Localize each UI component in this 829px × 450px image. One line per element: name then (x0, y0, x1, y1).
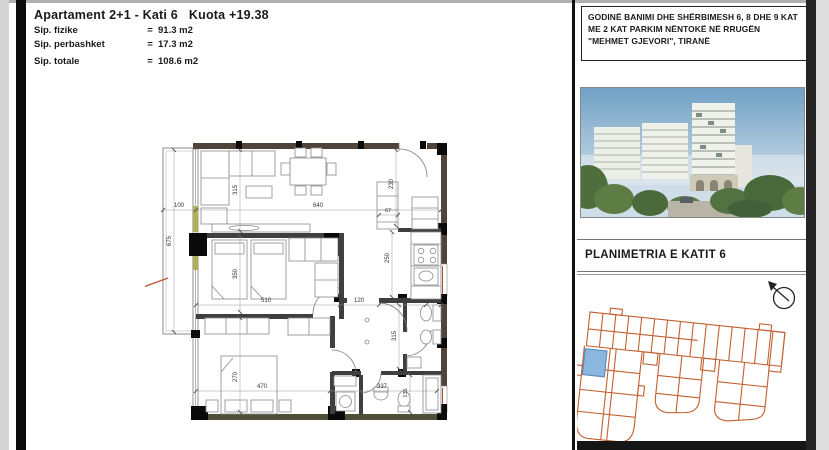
titleblock-separator (572, 0, 575, 450)
svg-text:120: 120 (354, 298, 365, 304)
key-plan (577, 276, 809, 441)
keyplan-outline (577, 305, 786, 441)
equals-sign: = (142, 56, 158, 67)
building-photo (580, 87, 805, 218)
titleblock-divider (577, 274, 806, 275)
area-label: Sip. totale (34, 56, 142, 67)
svg-text:470: 470 (257, 384, 268, 390)
svg-text:337: 337 (377, 384, 388, 390)
drawing-title: PLANIMETRIA E KATIT 6 (585, 249, 726, 261)
titleblock-divider (577, 271, 806, 272)
area-row: Sip. perbashket = 17.3 m2 (34, 39, 334, 50)
area-value: 17.3 m2 (158, 39, 193, 50)
svg-text:510: 510 (261, 298, 272, 304)
north-arrow-icon (768, 281, 795, 309)
area-label: Sip. perbashket (34, 39, 142, 50)
svg-text:230: 230 (389, 178, 395, 189)
highlighted-unit (582, 349, 607, 377)
svg-text:350: 350 (233, 268, 239, 279)
svg-text:167: 167 (397, 298, 408, 304)
svg-text:315: 315 (233, 184, 239, 195)
area-row: Sip. totale = 108.6 m2 (34, 56, 334, 67)
apartment-info: Apartament 2+1 - Kati 6 Kuota +19.38 Sip… (34, 8, 334, 67)
svg-text:315: 315 (392, 330, 398, 341)
svg-text:67: 67 (385, 208, 391, 214)
floor-plan: 100 640 315 675 230 67 250 350 510 120 1… (145, 123, 465, 428)
equals-sign: = (142, 39, 158, 50)
area-value: 108.6 m2 (158, 56, 198, 67)
svg-text:100: 100 (174, 203, 185, 209)
page-edge-left (0, 0, 9, 450)
svg-text:640: 640 (313, 203, 324, 209)
equals-sign: = (142, 25, 158, 36)
titleblock-bottom-bar (577, 441, 806, 450)
svg-text:250: 250 (385, 252, 391, 263)
project-description: GODINË BANIMI DHE SHËRBIMESH 6, 8 DHE 9 … (581, 6, 808, 61)
svg-text:270: 270 (233, 371, 239, 382)
svg-text:135: 135 (403, 388, 409, 397)
area-value: 91.3 m2 (158, 25, 193, 36)
svg-text:675: 675 (167, 235, 173, 246)
area-label: Sip. fizike (34, 25, 142, 36)
area-row: Sip. fizike = 91.3 m2 (34, 25, 334, 36)
left-black-border (16, 0, 26, 450)
drawing-sheet: Apartament 2+1 - Kati 6 Kuota +19.38 Sip… (0, 0, 829, 450)
apartment-title: Apartament 2+1 - Kati 6 Kuota +19.38 (34, 8, 334, 22)
page-edge-right (816, 0, 829, 450)
titleblock-divider (577, 239, 806, 240)
page-edge-top (0, 0, 829, 3)
